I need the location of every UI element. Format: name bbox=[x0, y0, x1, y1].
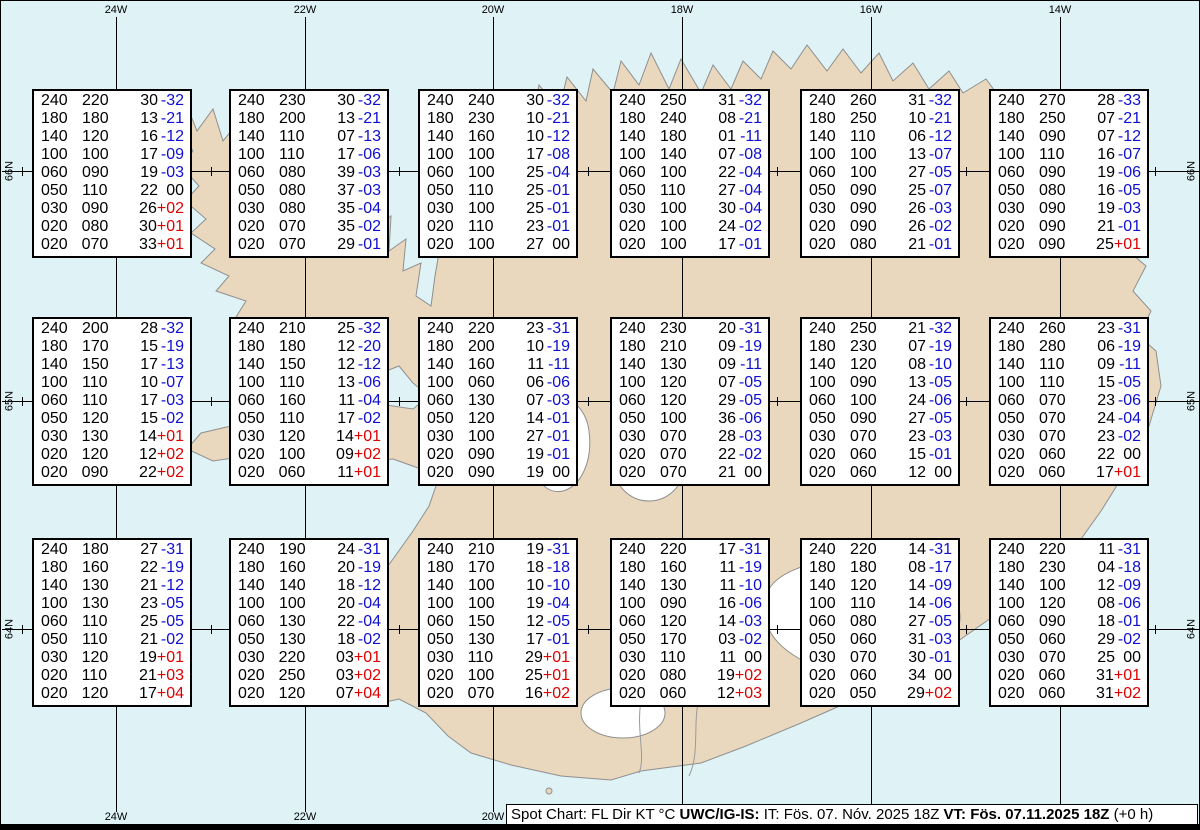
dir-value: 100 bbox=[468, 577, 514, 595]
fl-value: 050 bbox=[991, 631, 1039, 649]
kt-value: 23 bbox=[1085, 428, 1115, 446]
kt-value: 29 bbox=[325, 236, 355, 254]
kt-value: 24 bbox=[706, 218, 736, 236]
kt-value: 22 bbox=[1085, 446, 1115, 464]
spot-row: 03012019+01 bbox=[34, 649, 190, 667]
fl-value: 020 bbox=[231, 218, 279, 236]
spot-row: 03009026+02 bbox=[34, 200, 190, 218]
fl-value: 240 bbox=[231, 541, 279, 559]
temp-value: -31 bbox=[736, 320, 768, 338]
temp-value: -31 bbox=[1115, 320, 1147, 338]
fl-value: 140 bbox=[231, 577, 279, 595]
spot-row: 03012014+01 bbox=[231, 428, 387, 446]
dir-value: 090 bbox=[1039, 218, 1085, 236]
graticule-tick bbox=[1155, 625, 1156, 634]
spot-row: 18016020-19 bbox=[231, 559, 387, 577]
kt-value: 24 bbox=[325, 541, 355, 559]
dir-value: 090 bbox=[468, 464, 514, 482]
kt-value: 25 bbox=[128, 613, 158, 631]
kt-value: 12 bbox=[705, 685, 735, 703]
kt-value: 17 bbox=[325, 146, 355, 164]
dir-value: 070 bbox=[1039, 428, 1085, 446]
fl-value: 020 bbox=[802, 667, 850, 685]
fl-value: 030 bbox=[612, 428, 660, 446]
spot-row: 06009019-06 bbox=[991, 164, 1147, 182]
temp-value: -32 bbox=[926, 92, 958, 110]
dir-value: 220 bbox=[660, 541, 706, 559]
kt-value: 19 bbox=[514, 595, 544, 613]
spot-row: 03011029+01 bbox=[420, 649, 576, 667]
spot-data-box: 24022014-3118018008-1714012014-091001101… bbox=[800, 538, 960, 707]
fl-value: 140 bbox=[802, 128, 850, 146]
temp-value: +01 bbox=[354, 464, 387, 482]
temp-value: -19 bbox=[1115, 338, 1147, 356]
spot-row: 18021009-19 bbox=[612, 338, 768, 356]
kt-value: 26 bbox=[127, 200, 157, 218]
spot-row: 02007016+02 bbox=[420, 685, 576, 703]
spot-row: 0200603400 bbox=[802, 667, 958, 685]
kt-value: 29 bbox=[1085, 631, 1115, 649]
temp-value: -05 bbox=[736, 374, 768, 392]
fl-value: 100 bbox=[991, 146, 1039, 164]
kt-value: 17 bbox=[325, 410, 355, 428]
fl-value: 060 bbox=[231, 392, 279, 410]
kt-value: 07 bbox=[325, 128, 355, 146]
temp-value: -02 bbox=[736, 446, 768, 464]
fl-value: 030 bbox=[34, 649, 82, 667]
spot-row: 03022003+01 bbox=[231, 649, 387, 667]
fl-value: 030 bbox=[991, 200, 1039, 218]
fl-value: 180 bbox=[802, 110, 850, 128]
meridian-label-top: 14W bbox=[1049, 4, 1072, 16]
dir-value: 090 bbox=[660, 595, 706, 613]
kt-value: 12 bbox=[1085, 577, 1115, 595]
temp-value: -08 bbox=[736, 146, 768, 164]
spot-row: 10011010-07 bbox=[34, 374, 190, 392]
spot-data-box: 24023020-3118021009-1914013009-111001200… bbox=[610, 317, 770, 486]
kt-value: 21 bbox=[896, 236, 926, 254]
spot-row: 05011021-02 bbox=[34, 631, 190, 649]
temp-value: -05 bbox=[1115, 182, 1147, 200]
spot-row: 24025031-32 bbox=[612, 92, 768, 110]
kt-value: 07 bbox=[706, 146, 736, 164]
dir-value: 180 bbox=[660, 128, 706, 146]
fl-value: 030 bbox=[802, 649, 850, 667]
kt-value: 21 bbox=[127, 667, 157, 685]
kt-value: 31 bbox=[1084, 685, 1114, 703]
dir-value: 080 bbox=[279, 164, 325, 182]
temp-value: -11 bbox=[1115, 356, 1147, 374]
dir-value: 090 bbox=[850, 410, 896, 428]
dir-value: 070 bbox=[1039, 410, 1085, 428]
fl-value: 020 bbox=[991, 464, 1039, 482]
dir-value: 110 bbox=[82, 667, 128, 685]
dir-value: 170 bbox=[468, 559, 514, 577]
dir-value: 120 bbox=[279, 685, 325, 703]
temp-value: -05 bbox=[926, 410, 958, 428]
kt-value: 23 bbox=[1085, 392, 1115, 410]
dir-value: 110 bbox=[850, 595, 896, 613]
kt-value: 18 bbox=[1085, 613, 1115, 631]
fl-value: 100 bbox=[991, 595, 1039, 613]
kt-value: 03 bbox=[324, 667, 354, 685]
fl-value: 020 bbox=[802, 685, 850, 703]
temp-value: -02 bbox=[736, 218, 768, 236]
fl-value: 180 bbox=[802, 338, 850, 356]
fl-value: 020 bbox=[34, 464, 82, 482]
meridian-label-bottom: 24W bbox=[105, 811, 128, 823]
fl-value: 030 bbox=[802, 428, 850, 446]
temp-value: -20 bbox=[355, 338, 387, 356]
temp-value: -32 bbox=[355, 320, 387, 338]
temp-value: -02 bbox=[1115, 428, 1147, 446]
dir-value: 160 bbox=[279, 392, 325, 410]
kt-value: 22 bbox=[706, 446, 736, 464]
spot-row: 02009019-01 bbox=[420, 446, 576, 464]
dir-value: 110 bbox=[279, 146, 325, 164]
dir-value: 060 bbox=[850, 446, 896, 464]
kt-value: 35 bbox=[325, 218, 355, 236]
fl-value: 180 bbox=[231, 559, 279, 577]
temp-value: -05 bbox=[926, 164, 958, 182]
fl-value: 050 bbox=[420, 631, 468, 649]
temp-value: 00 bbox=[544, 464, 576, 482]
temp-value: -12 bbox=[158, 577, 190, 595]
kt-value: 15 bbox=[896, 446, 926, 464]
kt-value: 14 bbox=[706, 613, 736, 631]
temp-value: -12 bbox=[926, 128, 958, 146]
temp-value: -13 bbox=[158, 356, 190, 374]
temp-value: 00 bbox=[1115, 649, 1147, 667]
spot-data-box: 24022023-3118020010-1914016011-111000600… bbox=[418, 317, 578, 486]
temp-value: -18 bbox=[544, 559, 576, 577]
spot-row: 02007029-01 bbox=[231, 236, 387, 254]
kt-value: 19 bbox=[128, 164, 158, 182]
fl-value: 240 bbox=[231, 320, 279, 338]
temp-value: -19 bbox=[736, 559, 768, 577]
kt-value: 22 bbox=[325, 613, 355, 631]
dir-value: 200 bbox=[279, 110, 325, 128]
kt-value: 39 bbox=[325, 164, 355, 182]
kt-value: 07 bbox=[706, 374, 736, 392]
kt-value: 17 bbox=[1084, 464, 1114, 482]
fl-value: 020 bbox=[991, 446, 1039, 464]
temp-value: -07 bbox=[926, 146, 958, 164]
fl-value: 140 bbox=[231, 356, 279, 374]
kt-value: 14 bbox=[127, 428, 157, 446]
kt-value: 25 bbox=[514, 182, 544, 200]
fl-value: 180 bbox=[34, 559, 82, 577]
kt-value: 09 bbox=[324, 446, 354, 464]
temp-value: -10 bbox=[736, 577, 768, 595]
dir-value: 230 bbox=[279, 92, 325, 110]
spot-row: 02007033+01 bbox=[34, 236, 190, 254]
fl-value: 030 bbox=[991, 428, 1039, 446]
kt-value: 27 bbox=[514, 236, 544, 254]
kt-value: 14 bbox=[514, 410, 544, 428]
kt-value: 14 bbox=[324, 428, 354, 446]
spot-row: 02009025+01 bbox=[991, 236, 1147, 254]
spot-row: 02006011+01 bbox=[231, 464, 387, 482]
dir-value: 220 bbox=[279, 649, 325, 667]
temp-value: -33 bbox=[1115, 92, 1147, 110]
temp-value: +01 bbox=[157, 236, 190, 254]
spot-data-box: 24019024-3118016020-1914014018-121001002… bbox=[229, 538, 389, 707]
temp-value: -06 bbox=[926, 392, 958, 410]
kt-value: 06 bbox=[514, 374, 544, 392]
spot-row: 03007028-03 bbox=[612, 428, 768, 446]
kt-value: 21 bbox=[128, 577, 158, 595]
spot-row: 06013022-04 bbox=[231, 613, 387, 631]
graticule-tick bbox=[777, 625, 778, 634]
fl-value: 180 bbox=[420, 110, 468, 128]
spot-row: 0501102200 bbox=[34, 182, 190, 200]
fl-value: 050 bbox=[991, 182, 1039, 200]
temp-value: -21 bbox=[736, 110, 768, 128]
spot-row: 18025007-21 bbox=[991, 110, 1147, 128]
spot-row: 05007024-04 bbox=[991, 410, 1147, 428]
fl-value: 020 bbox=[420, 464, 468, 482]
fl-value: 100 bbox=[34, 595, 82, 613]
kt-value: 17 bbox=[127, 685, 157, 703]
footer-prefix: Spot Chart: FL Dir KT °C bbox=[511, 806, 680, 823]
fl-value: 030 bbox=[612, 649, 660, 667]
dir-value: 100 bbox=[850, 146, 896, 164]
dir-value: 250 bbox=[660, 92, 706, 110]
kt-value: 29 bbox=[895, 685, 925, 703]
dir-value: 070 bbox=[82, 236, 128, 254]
kt-value: 30 bbox=[325, 92, 355, 110]
temp-value: +01 bbox=[354, 649, 387, 667]
kt-value: 24 bbox=[1085, 410, 1115, 428]
temp-value: -04 bbox=[355, 200, 387, 218]
kt-value: 23 bbox=[1085, 320, 1115, 338]
temp-value: -31 bbox=[544, 541, 576, 559]
spot-data-box: 24024030-3218023010-2114016010-121001001… bbox=[418, 89, 578, 258]
dir-value: 080 bbox=[279, 182, 325, 200]
kt-value: 21 bbox=[1085, 218, 1115, 236]
temp-value: -19 bbox=[926, 338, 958, 356]
fl-value: 020 bbox=[34, 446, 82, 464]
fl-value: 060 bbox=[34, 613, 82, 631]
dir-value: 180 bbox=[279, 338, 325, 356]
fl-value: 240 bbox=[612, 92, 660, 110]
temp-value: 00 bbox=[736, 464, 768, 482]
spot-row: 10010017-09 bbox=[34, 146, 190, 164]
kt-value: 18 bbox=[325, 577, 355, 595]
dir-value: 080 bbox=[279, 200, 325, 218]
kt-value: 30 bbox=[706, 200, 736, 218]
spot-row: 18024008-21 bbox=[612, 110, 768, 128]
spot-row: 02011021+03 bbox=[34, 667, 190, 685]
fl-value: 060 bbox=[231, 164, 279, 182]
spot-row: 14014018-12 bbox=[231, 577, 387, 595]
fl-value: 050 bbox=[991, 410, 1039, 428]
spot-chart-page: 24W22W20W18W16W14W24W22W20W66N66N65N65N6… bbox=[0, 0, 1200, 830]
spot-data-box: 24021019-3118017018-1814010010-101001001… bbox=[418, 538, 578, 707]
temp-value: -32 bbox=[544, 92, 576, 110]
fl-value: 180 bbox=[612, 559, 660, 577]
temp-value: -05 bbox=[926, 374, 958, 392]
spot-row: 06008039-03 bbox=[231, 164, 387, 182]
spot-row: 18017015-19 bbox=[34, 338, 190, 356]
kt-value: 15 bbox=[1085, 374, 1115, 392]
temp-value: -01 bbox=[926, 236, 958, 254]
dir-value: 220 bbox=[1039, 541, 1085, 559]
temp-value: +01 bbox=[157, 649, 190, 667]
fl-value: 050 bbox=[231, 631, 279, 649]
kt-value: 07 bbox=[324, 685, 354, 703]
spot-row: 02006031+02 bbox=[991, 685, 1147, 703]
temp-value: -02 bbox=[355, 631, 387, 649]
temp-value: -32 bbox=[926, 320, 958, 338]
dir-value: 240 bbox=[660, 110, 706, 128]
graticule-tick bbox=[22, 167, 23, 176]
spot-row: 05006031-03 bbox=[802, 631, 958, 649]
kt-value: 13 bbox=[896, 374, 926, 392]
spot-row: 14011009-11 bbox=[991, 356, 1147, 374]
kt-value: 28 bbox=[128, 320, 158, 338]
spot-row: 06011017-03 bbox=[34, 392, 190, 410]
fl-value: 020 bbox=[231, 685, 279, 703]
temp-value: 00 bbox=[544, 236, 576, 254]
spot-row: 05011027-04 bbox=[612, 182, 768, 200]
dir-value: 090 bbox=[1039, 236, 1085, 254]
fl-value: 100 bbox=[612, 374, 660, 392]
spot-row: 02009021-01 bbox=[991, 218, 1147, 236]
spot-row: 24022017-31 bbox=[612, 541, 768, 559]
fl-value: 030 bbox=[231, 649, 279, 667]
temp-value: -01 bbox=[1115, 613, 1147, 631]
fl-value: 050 bbox=[802, 410, 850, 428]
temp-value: 00 bbox=[1115, 446, 1147, 464]
meridian-label-top: 20W bbox=[482, 4, 505, 16]
kt-value: 23 bbox=[128, 595, 158, 613]
dir-value: 060 bbox=[468, 374, 514, 392]
fl-value: 020 bbox=[231, 236, 279, 254]
kt-value: 29 bbox=[513, 649, 543, 667]
fl-value: 240 bbox=[991, 541, 1039, 559]
spot-row: 24023020-31 bbox=[612, 320, 768, 338]
fl-value: 180 bbox=[420, 338, 468, 356]
vestmannaeyjar-island bbox=[546, 788, 552, 794]
fl-value: 100 bbox=[612, 595, 660, 613]
kt-value: 01 bbox=[706, 128, 736, 146]
meridian-label-top: 22W bbox=[294, 4, 317, 16]
spot-row: 06008027-05 bbox=[802, 613, 958, 631]
dir-value: 210 bbox=[279, 320, 325, 338]
kt-value: 36 bbox=[706, 410, 736, 428]
temp-value: 00 bbox=[158, 182, 190, 200]
dir-value: 260 bbox=[850, 92, 896, 110]
temp-value: -01 bbox=[544, 428, 576, 446]
dir-value: 280 bbox=[1039, 338, 1085, 356]
fl-value: 140 bbox=[34, 577, 82, 595]
spot-row: 10010017-08 bbox=[420, 146, 576, 164]
fl-value: 140 bbox=[612, 128, 660, 146]
temp-value: -06 bbox=[355, 374, 387, 392]
spot-row: 02006012+03 bbox=[612, 685, 768, 703]
kt-value: 27 bbox=[896, 164, 926, 182]
spot-data-box: 24022017-3118016011-1914013011-101000901… bbox=[610, 538, 770, 707]
spot-row: 14011007-13 bbox=[231, 128, 387, 146]
kt-value: 16 bbox=[1085, 182, 1115, 200]
dir-value: 070 bbox=[279, 236, 325, 254]
fl-value: 050 bbox=[34, 410, 82, 428]
temp-value: -11 bbox=[736, 356, 768, 374]
spot-row: 0200702100 bbox=[612, 464, 768, 482]
fl-value: 140 bbox=[991, 128, 1039, 146]
kt-value: 14 bbox=[896, 577, 926, 595]
spot-row: 05013018-02 bbox=[231, 631, 387, 649]
kt-value: 29 bbox=[706, 392, 736, 410]
spot-row: 18018013-21 bbox=[34, 110, 190, 128]
temp-value: 00 bbox=[926, 667, 958, 685]
fl-value: 060 bbox=[420, 392, 468, 410]
temp-value: +02 bbox=[735, 667, 768, 685]
temp-value: +01 bbox=[157, 218, 190, 236]
kt-value: 19 bbox=[514, 541, 544, 559]
temp-value: -06 bbox=[355, 146, 387, 164]
temp-value: -09 bbox=[158, 146, 190, 164]
dir-value: 120 bbox=[468, 410, 514, 428]
spot-row: 03008035-04 bbox=[231, 200, 387, 218]
temp-value: -03 bbox=[355, 164, 387, 182]
temp-value: -01 bbox=[544, 446, 576, 464]
kt-value: 13 bbox=[128, 110, 158, 128]
kt-value: 12 bbox=[325, 338, 355, 356]
temp-value: -04 bbox=[355, 595, 387, 613]
dir-value: 130 bbox=[82, 595, 128, 613]
fl-value: 140 bbox=[991, 577, 1039, 595]
temp-value: -05 bbox=[736, 392, 768, 410]
dir-value: 210 bbox=[468, 541, 514, 559]
kt-value: 21 bbox=[128, 631, 158, 649]
kt-value: 04 bbox=[1085, 559, 1115, 577]
temp-value: -32 bbox=[158, 92, 190, 110]
dir-value: 150 bbox=[82, 356, 128, 374]
dir-value: 100 bbox=[850, 392, 896, 410]
dir-value: 100 bbox=[468, 595, 514, 613]
spot-row: 06010025-04 bbox=[420, 164, 576, 182]
kt-value: 17 bbox=[128, 146, 158, 164]
kt-value: 19 bbox=[1085, 200, 1115, 218]
dir-value: 070 bbox=[660, 446, 706, 464]
fl-value: 020 bbox=[612, 236, 660, 254]
temp-value: -19 bbox=[736, 338, 768, 356]
kt-value: 20 bbox=[325, 559, 355, 577]
fl-value: 020 bbox=[802, 218, 850, 236]
kt-value: 25 bbox=[896, 182, 926, 200]
spot-row: 02006031+01 bbox=[991, 667, 1147, 685]
spot-row: 02010024-02 bbox=[612, 218, 768, 236]
kt-value: 12 bbox=[325, 356, 355, 374]
dir-value: 090 bbox=[82, 200, 128, 218]
temp-value: -04 bbox=[355, 392, 387, 410]
spot-row: 03009026-03 bbox=[802, 200, 958, 218]
spot-row: 10010019-04 bbox=[420, 595, 576, 613]
kt-value: 17 bbox=[706, 236, 736, 254]
kt-value: 27 bbox=[514, 428, 544, 446]
fl-value: 180 bbox=[34, 338, 82, 356]
temp-value: -07 bbox=[158, 374, 190, 392]
dir-value: 090 bbox=[1039, 200, 1085, 218]
kt-value: 30 bbox=[896, 649, 926, 667]
temp-value: -01 bbox=[355, 236, 387, 254]
temp-value: -04 bbox=[544, 164, 576, 182]
dir-value: 130 bbox=[660, 577, 706, 595]
fl-value: 020 bbox=[420, 218, 468, 236]
